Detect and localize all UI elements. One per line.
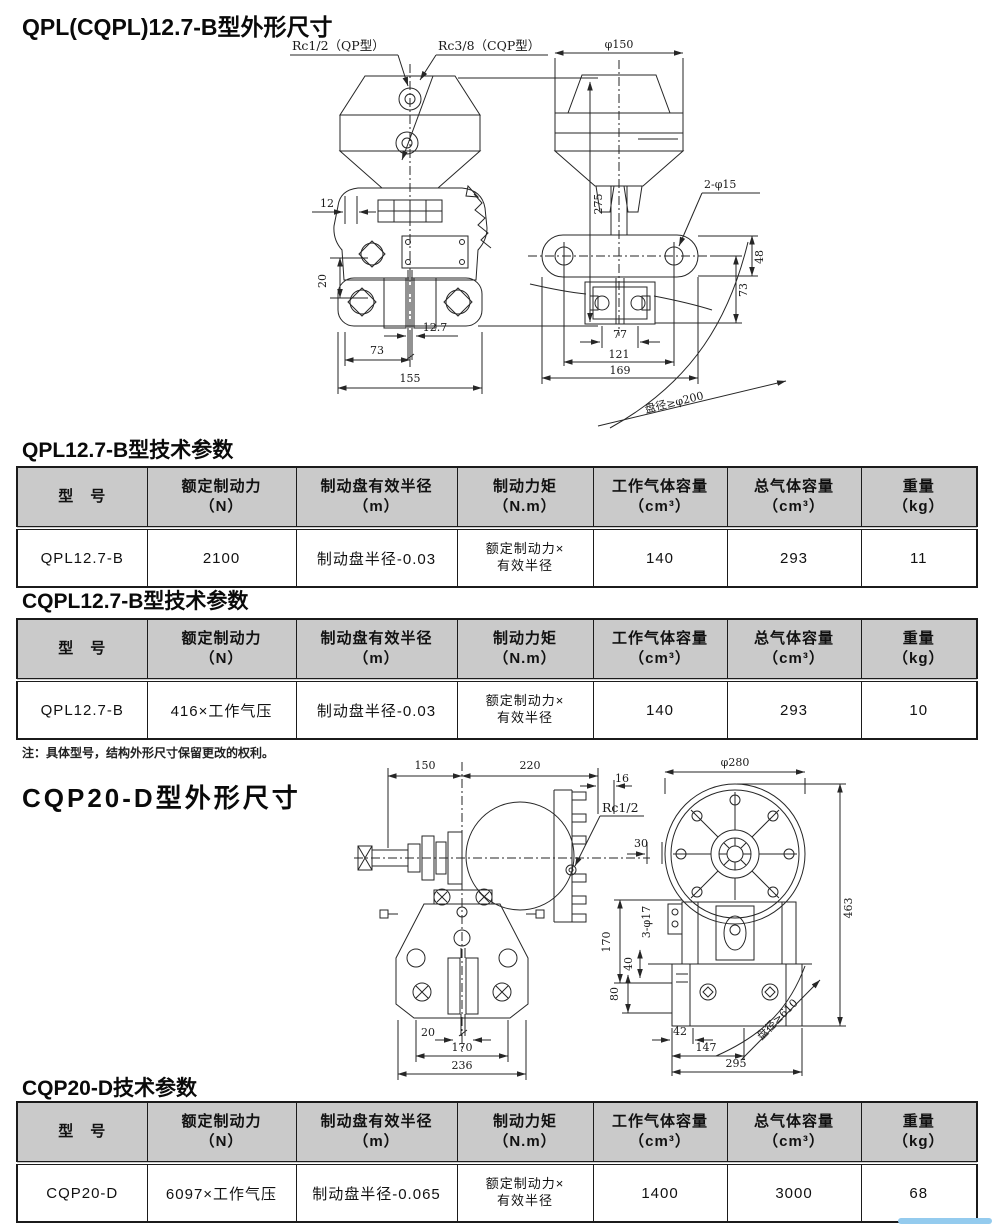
qpl-cqpl-127b-dimension-drawing: Rc1/2（QP型） Rc3/8（CQP型） 12 20 275 12.7 73… xyxy=(280,36,992,436)
section-title-qpl127b-specs: QPL12.7-B型技术参数 xyxy=(22,434,233,464)
header-cell-working-volume: 工作气体容量（cm³） xyxy=(593,467,727,528)
dim-label-16: 16 xyxy=(615,772,629,785)
cqp20d-spec-table: 型 号 额定制动力（N） 制动盘有效半径（m） 制动力矩（N.m） 工作气体容量… xyxy=(16,1101,978,1223)
table-row: CQP20-D 6097×工作气压 制动盘半径-0.065 额定制动力×有效半径… xyxy=(17,1163,977,1222)
dim-label-155: 155 xyxy=(400,372,421,385)
header-cell-rated-force: 额定制动力（N） xyxy=(147,467,296,528)
header-cell-weight: 重量（kg） xyxy=(861,1102,977,1163)
cell-weight: 11 xyxy=(861,528,977,587)
table-header-row: 型 号 额定制动力（N） 制动盘有效半径（m） 制动力矩（N.m） 工作气体容量… xyxy=(17,1102,977,1163)
header-cell-weight: 重量（kg） xyxy=(861,467,977,528)
dim-label-20: 20 xyxy=(421,1026,435,1039)
side-view-geometry xyxy=(528,60,748,428)
page-bottom-indicator xyxy=(898,1218,992,1224)
dim-label-12: 12 xyxy=(320,197,334,210)
cell-weight: 10 xyxy=(861,680,977,739)
cell-rated-force: 416×工作气压 xyxy=(147,680,296,739)
dim-label-phi150: φ150 xyxy=(605,38,634,51)
header-cell-effective-radius: 制动盘有效半径（m） xyxy=(296,467,457,528)
cell-model: CQP20-D xyxy=(17,1163,147,1222)
cell-rated-force: 2100 xyxy=(147,528,296,587)
port-label-rc12-qp: Rc1/2（QP型） xyxy=(292,38,385,53)
cell-total-volume: 293 xyxy=(727,528,861,587)
dim-label-170-height: 170 xyxy=(600,932,613,953)
header-cell-rated-force: 额定制动力（N） xyxy=(147,1102,296,1163)
dim-label-150: 150 xyxy=(415,759,436,772)
dim-label-463: 463 xyxy=(842,898,855,919)
cell-total-volume: 3000 xyxy=(727,1163,861,1222)
dim-label-phi280: φ280 xyxy=(721,756,750,769)
dim-label-236: 236 xyxy=(452,1059,473,1072)
cell-torque: 额定制动力×有效半径 xyxy=(457,528,593,587)
dim-label-20: 20 xyxy=(316,274,329,288)
table-row: QPL12.7-B 2100 制动盘半径-0.03 额定制动力×有效半径 140… xyxy=(17,528,977,587)
cell-effective-radius: 制动盘半径-0.03 xyxy=(296,528,457,587)
header-cell-torque: 制动力矩（N.m） xyxy=(457,467,593,528)
dim-label-73-side: 73 xyxy=(737,283,750,297)
header-cell-model: 型 号 xyxy=(17,1102,147,1163)
header-cell-total-volume: 总气体容量（cm³） xyxy=(727,467,861,528)
dim-label-3-phi17: 3-φ17 xyxy=(640,906,653,938)
cqp20d-dimension-drawing: 150 220 16 Rc1/2 20 170 236 xyxy=(350,752,992,1092)
header-cell-rated-force: 额定制动力（N） xyxy=(147,619,296,680)
dim-label-40: 40 xyxy=(622,957,635,971)
cell-model: QPL12.7-B xyxy=(17,680,147,739)
disc-diameter-note-200: 盘径≥φ200 xyxy=(643,388,705,416)
cqpl127b-spec-table: 型 号 额定制动力（N） 制动盘有效半径（m） 制动力矩（N.m） 工作气体容量… xyxy=(16,618,978,740)
section-title-cqp20d-dimensions: CQP20-D型外形尺寸 xyxy=(22,778,301,815)
header-cell-effective-radius: 制动盘有效半径（m） xyxy=(296,619,457,680)
section-title-cqpl127b-specs: CQPL12.7-B型技术参数 xyxy=(22,585,248,615)
front-view-dimensions xyxy=(290,55,598,394)
header-cell-total-volume: 总气体容量（cm³） xyxy=(727,1102,861,1163)
table-header-row: 型 号 额定制动力（N） 制动盘有效半径（m） 制动力矩（N.m） 工作气体容量… xyxy=(17,619,977,680)
header-cell-total-volume: 总气体容量（cm³） xyxy=(727,619,861,680)
cell-working-volume: 1400 xyxy=(593,1163,727,1222)
dim-label-80: 80 xyxy=(608,987,621,1001)
dim-label-12-7: 12.7 xyxy=(423,321,448,334)
table-row: QPL12.7-B 416×工作气压 制动盘半径-0.03 额定制动力×有效半径… xyxy=(17,680,977,739)
cell-effective-radius: 制动盘半径-0.03 xyxy=(296,680,457,739)
dim-label-220: 220 xyxy=(520,759,541,772)
footnote: 注：具体型号，结构外形尺寸保留更改的权利。 xyxy=(22,744,274,761)
cell-model: QPL12.7-B xyxy=(17,528,147,587)
port-label-rc38-cqp: Rc3/8（CQP型） xyxy=(438,38,540,53)
side-view-dimensions xyxy=(542,53,786,426)
dim-label-169: 169 xyxy=(610,364,631,377)
dim-label-170-width: 170 xyxy=(452,1041,473,1054)
dim-label-147: 147 xyxy=(696,1041,717,1054)
header-cell-torque: 制动力矩（N.m） xyxy=(457,1102,593,1163)
header-cell-weight: 重量（kg） xyxy=(861,619,977,680)
cell-torque: 额定制动力×有效半径 xyxy=(457,1163,593,1222)
dim-label-48: 48 xyxy=(753,250,766,264)
header-cell-torque: 制动力矩（N.m） xyxy=(457,619,593,680)
dim-label-121: 121 xyxy=(609,348,630,361)
dim-label-295: 295 xyxy=(726,1057,747,1070)
dim-label-73-front: 73 xyxy=(370,344,384,357)
cell-total-volume: 293 xyxy=(727,680,861,739)
cell-torque: 额定制动力×有效半径 xyxy=(457,680,593,739)
header-cell-model: 型 号 xyxy=(17,467,147,528)
port-label-rc12: Rc1/2 xyxy=(602,800,639,815)
dim-label-42: 42 xyxy=(673,1025,687,1038)
table-header-row: 型 号 额定制动力（N） 制动盘有效半径（m） 制动力矩（N.m） 工作气体容量… xyxy=(17,467,977,528)
datasheet-page: QPL(CQPL)12.7-B型外形尺寸 xyxy=(0,0,992,1224)
dim-label-2-phi15: 2-φ15 xyxy=(704,178,736,191)
cell-working-volume: 140 xyxy=(593,680,727,739)
dim-label-77: 77 xyxy=(613,328,627,341)
header-cell-effective-radius: 制动盘有效半径（m） xyxy=(296,1102,457,1163)
header-cell-working-volume: 工作气体容量（cm³） xyxy=(593,1102,727,1163)
disc-diameter-note-610: 盘径≥610 xyxy=(754,996,801,1043)
cell-weight: 68 xyxy=(861,1163,977,1222)
cell-rated-force: 6097×工作气压 xyxy=(147,1163,296,1222)
header-cell-model: 型 号 xyxy=(17,619,147,680)
cell-working-volume: 140 xyxy=(593,528,727,587)
qpl127b-spec-table: 型 号 额定制动力（N） 制动盘有效半径（m） 制动力矩（N.m） 工作气体容量… xyxy=(16,466,978,588)
dim-label-30: 30 xyxy=(634,837,648,850)
header-cell-working-volume: 工作气体容量（cm³） xyxy=(593,619,727,680)
cell-effective-radius: 制动盘半径-0.065 xyxy=(296,1163,457,1222)
section-title-cqp20d-specs: CQP20-D技术参数 xyxy=(22,1072,197,1102)
